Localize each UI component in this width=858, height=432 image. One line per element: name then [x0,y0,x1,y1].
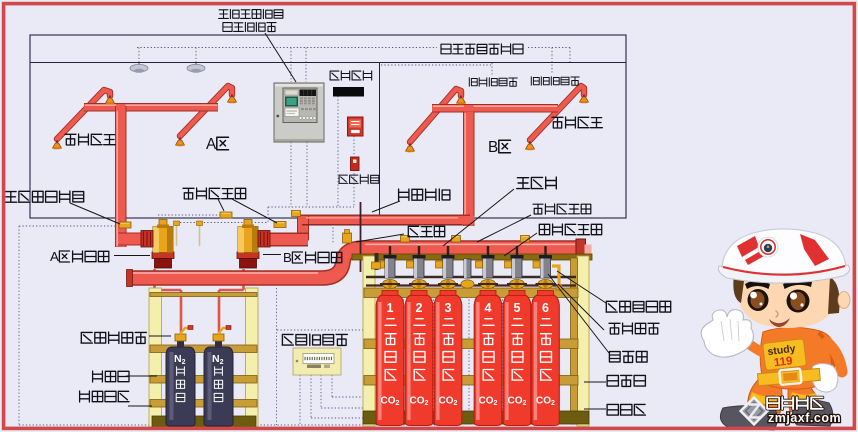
svg-text:A: A [50,249,59,264]
svg-text:2: 2 [416,301,423,315]
svg-text:4: 4 [485,301,492,315]
svg-text:6: 6 [542,301,549,315]
svg-text:1: 1 [387,301,394,315]
svg-text:119: 119 [773,355,793,369]
svg-text:B: B [283,250,292,265]
svg-text:A: A [206,136,217,153]
svg-text:B: B [488,139,498,156]
svg-text:3: 3 [445,301,452,315]
svg-text:zmjaxf.com: zmjaxf.com [768,411,841,425]
svg-text:5: 5 [514,301,521,315]
